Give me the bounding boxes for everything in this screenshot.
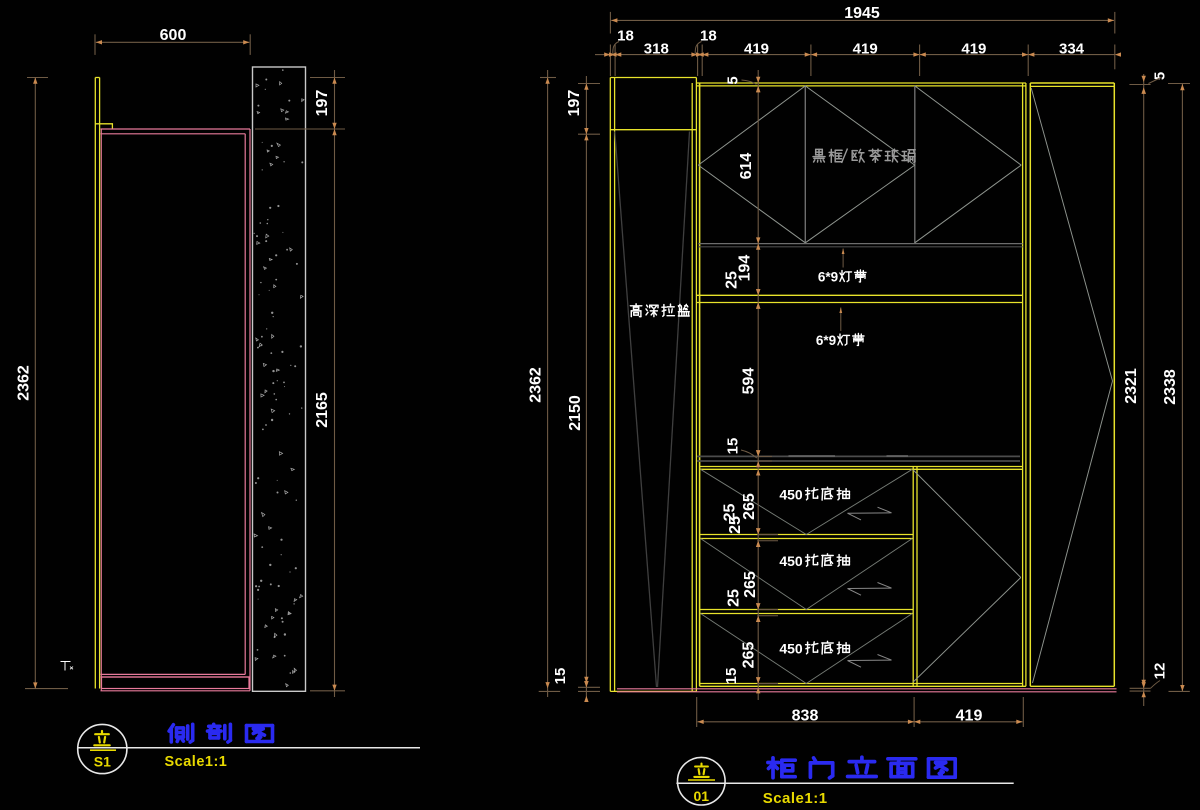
svg-text:600: 600 [160,27,187,44]
svg-text:5: 5 [1152,72,1169,80]
svg-text:265: 265 [741,642,758,669]
svg-text:318: 318 [644,41,669,58]
svg-text:2165: 2165 [314,392,331,428]
svg-text:2150: 2150 [567,395,584,431]
svg-text:15: 15 [552,668,569,685]
svg-text:419: 419 [853,41,878,58]
svg-text:18: 18 [617,28,634,45]
svg-text:12: 12 [1151,663,1168,680]
svg-text:197: 197 [566,90,583,117]
svg-text:419: 419 [956,707,983,724]
svg-text:Scale1:1: Scale1:1 [763,790,828,807]
svg-text:25: 25 [727,516,744,534]
svg-text:419: 419 [961,41,986,58]
svg-text:18: 18 [700,28,717,45]
svg-text:S1: S1 [94,754,111,770]
svg-text:2321: 2321 [1123,368,1140,404]
svg-text:01: 01 [694,788,710,804]
svg-text:15: 15 [723,668,740,685]
svg-text:265: 265 [742,571,759,598]
svg-text:2362: 2362 [16,365,33,401]
svg-text:614: 614 [738,153,755,180]
svg-text:594: 594 [740,368,757,395]
svg-text:1945: 1945 [844,5,880,22]
svg-text:2362: 2362 [528,367,545,403]
svg-text:450: 450 [779,641,803,657]
svg-text:450: 450 [779,553,803,569]
svg-text:419: 419 [744,41,769,58]
svg-text:2338: 2338 [1162,369,1179,405]
svg-text:265: 265 [741,493,758,520]
svg-text:25: 25 [724,271,741,289]
svg-text:6*9: 6*9 [818,270,838,285]
svg-text:6*9: 6*9 [816,333,836,348]
svg-text:450: 450 [779,487,803,503]
svg-text:25: 25 [726,589,743,607]
svg-text:15: 15 [725,438,742,455]
svg-text:838: 838 [792,707,819,724]
svg-text:Scale1:1: Scale1:1 [165,754,228,770]
svg-text:197: 197 [314,90,331,117]
svg-text:334: 334 [1059,41,1085,58]
svg-text:5: 5 [725,76,742,84]
